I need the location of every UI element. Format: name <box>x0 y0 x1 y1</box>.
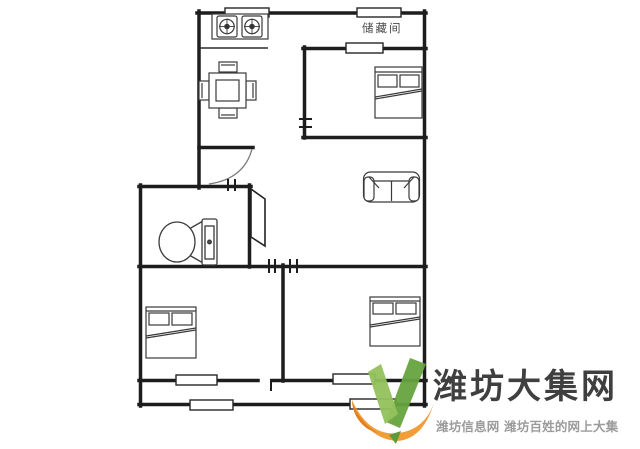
door-leaf-icon <box>251 189 265 246</box>
sofa-icon <box>364 172 420 202</box>
door-opening-ticks <box>228 119 312 273</box>
watermark-subtitle: 潍坊信息网 潍坊百姓的网上大集 <box>436 416 636 435</box>
check-left-stroke-icon <box>368 364 398 424</box>
double-bed-icon <box>146 307 196 358</box>
window-markers <box>176 8 401 410</box>
gas-stove-icon <box>212 14 268 39</box>
window-icon <box>357 8 401 17</box>
storage-room-label: 储藏间 <box>362 21 403 35</box>
toilet-icon <box>159 219 217 265</box>
door-swing-arc <box>209 149 252 184</box>
double-bed-icon <box>375 67 422 118</box>
window-icon <box>190 400 233 410</box>
window-icon <box>176 375 217 385</box>
window-icon <box>346 43 383 53</box>
dining-table-icon <box>199 62 256 118</box>
floorplan-image: 储藏间 潍坊大集网 潍坊信息网 潍坊百姓的网上大集 <box>0 0 640 449</box>
window-icon <box>333 374 375 384</box>
watermark-title: 潍坊大集网 <box>433 369 633 406</box>
double-bed-icon <box>370 297 420 346</box>
